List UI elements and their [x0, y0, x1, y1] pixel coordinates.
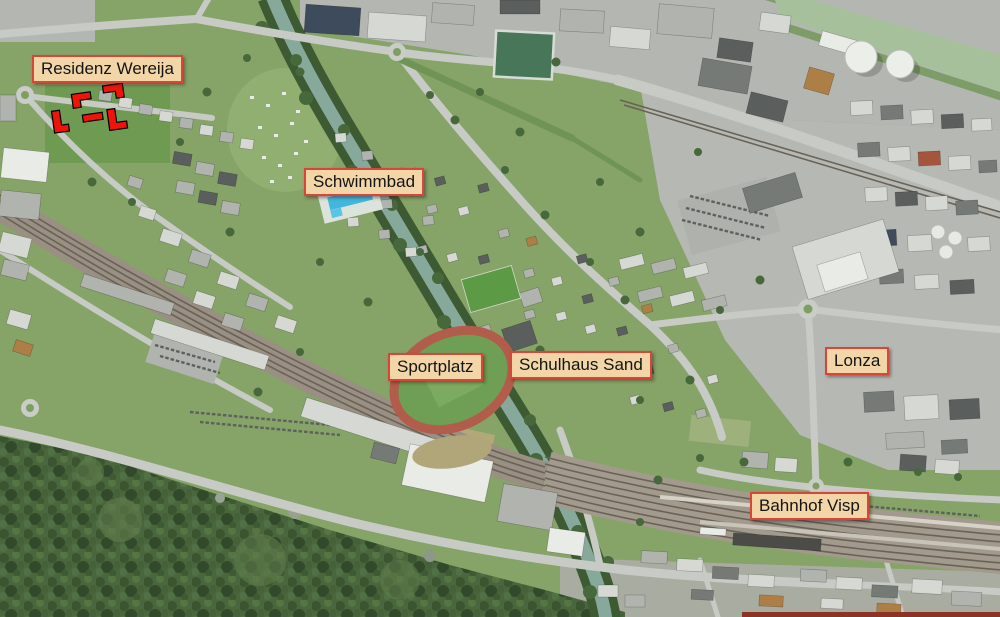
map-label-lonza: Lonza: [825, 347, 889, 375]
map-label-schulhaus-sand: Schulhaus Sand: [510, 351, 652, 379]
water-basin: [494, 31, 554, 80]
map-label-bahnhof-visp: Bahnhof Visp: [750, 492, 869, 520]
aerial-map-visp: Residenz Wereija Schwimmbad Sportplatz S…: [0, 0, 1000, 617]
aerial-imagery: [0, 0, 1000, 617]
map-label-residenz-wereija: Residenz Wereija: [32, 55, 183, 83]
map-label-sportplatz: Sportplatz: [388, 353, 483, 381]
map-label-schwimmbad: Schwimmbad: [304, 168, 424, 196]
